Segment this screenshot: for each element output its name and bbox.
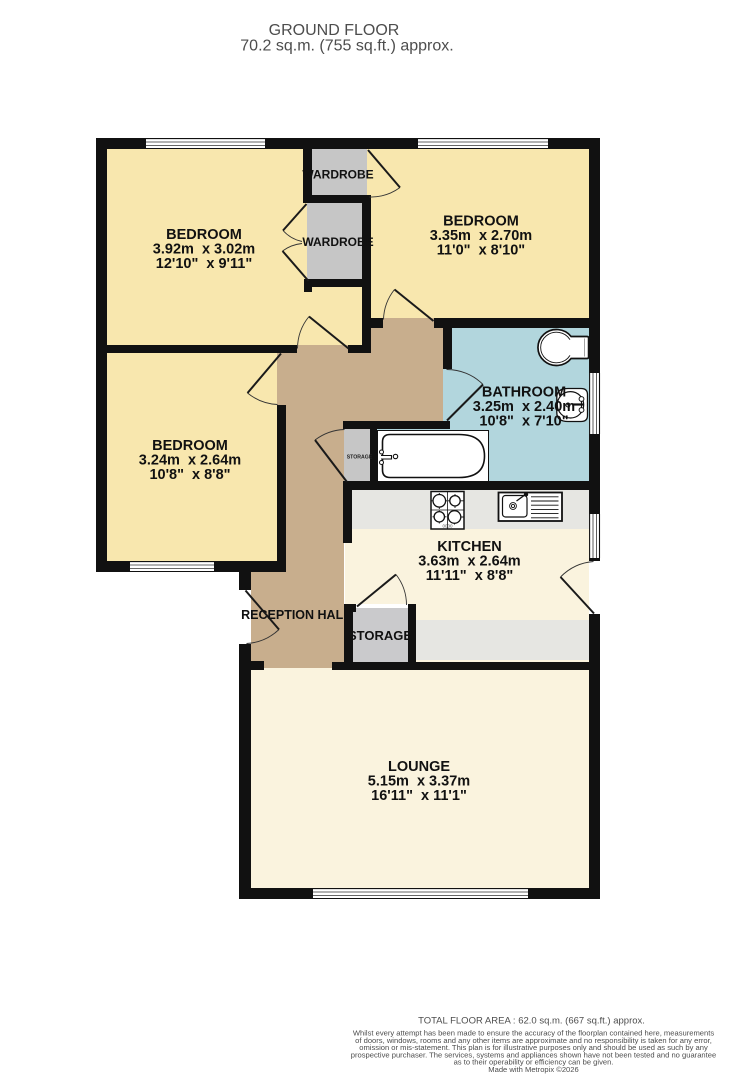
svg-text:STORAGE: STORAGE bbox=[348, 628, 412, 643]
svg-text:12'10" x 9'11": 12'10" x 9'11" bbox=[156, 256, 252, 272]
svg-text:10'8" x 7'10": 10'8" x 7'10" bbox=[479, 414, 568, 430]
svg-text:11'11" x 8'8": 11'11" x 8'8" bbox=[426, 568, 514, 584]
svg-text:Made with Metropix ©2026: Made with Metropix ©2026 bbox=[488, 1065, 578, 1074]
svg-text:WARDROBE: WARDROBE bbox=[302, 168, 373, 182]
svg-text:RECEPTION HALL: RECEPTION HALL bbox=[241, 608, 351, 622]
svg-text:GROUND FLOOR: GROUND FLOOR bbox=[269, 22, 400, 39]
svg-text:TOTAL FLOOR AREA : 62.0 sq.m.: TOTAL FLOOR AREA : 62.0 sq.m. (667 sq.ft… bbox=[418, 1016, 645, 1027]
svg-text:11'0" x 8'10": 11'0" x 8'10" bbox=[437, 243, 525, 259]
svg-text:70.2 sq.m. (755 sq.ft.) approx: 70.2 sq.m. (755 sq.ft.) approx. bbox=[240, 38, 453, 55]
svg-text:STORAGE: STORAGE bbox=[347, 455, 373, 461]
svg-text:WARDROBE: WARDROBE bbox=[302, 235, 373, 249]
svg-text:10'8" x 8'8": 10'8" x 8'8" bbox=[149, 467, 230, 483]
svg-text:16'11" x 11'1": 16'11" x 11'1" bbox=[371, 788, 467, 804]
svg-text:0000: 0000 bbox=[442, 524, 453, 529]
